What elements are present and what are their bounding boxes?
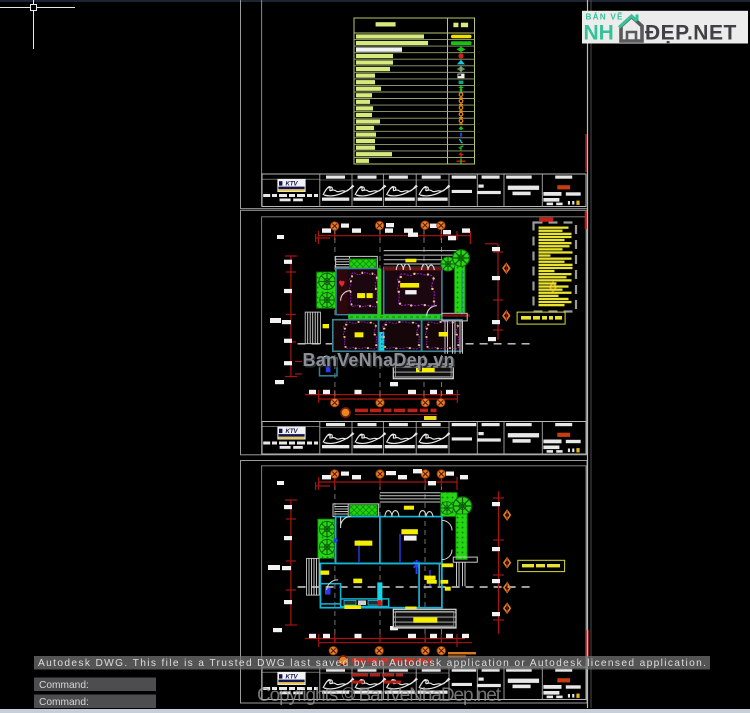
svg-text:Autodesk DWG. This file is a: Autodesk DWG. This file is a Trusted DWG…	[38, 658, 706, 669]
svg-text:BẢN VẼ: BẢN VẼ	[586, 11, 624, 22]
svg-text:NH: NH	[584, 22, 614, 45]
svg-text:Copyrights © BanVeNhaDep.net: Copyrights © BanVeNhaDep.net	[257, 685, 502, 706]
svg-text:Command:: Command:	[39, 680, 89, 691]
svg-text:ĐẸP.NET: ĐẸP.NET	[645, 22, 737, 45]
svg-text:Command:: Command:	[39, 697, 89, 708]
svg-text:BanVeNhaDep.vn: BanVeNhaDep.vn	[303, 350, 455, 370]
